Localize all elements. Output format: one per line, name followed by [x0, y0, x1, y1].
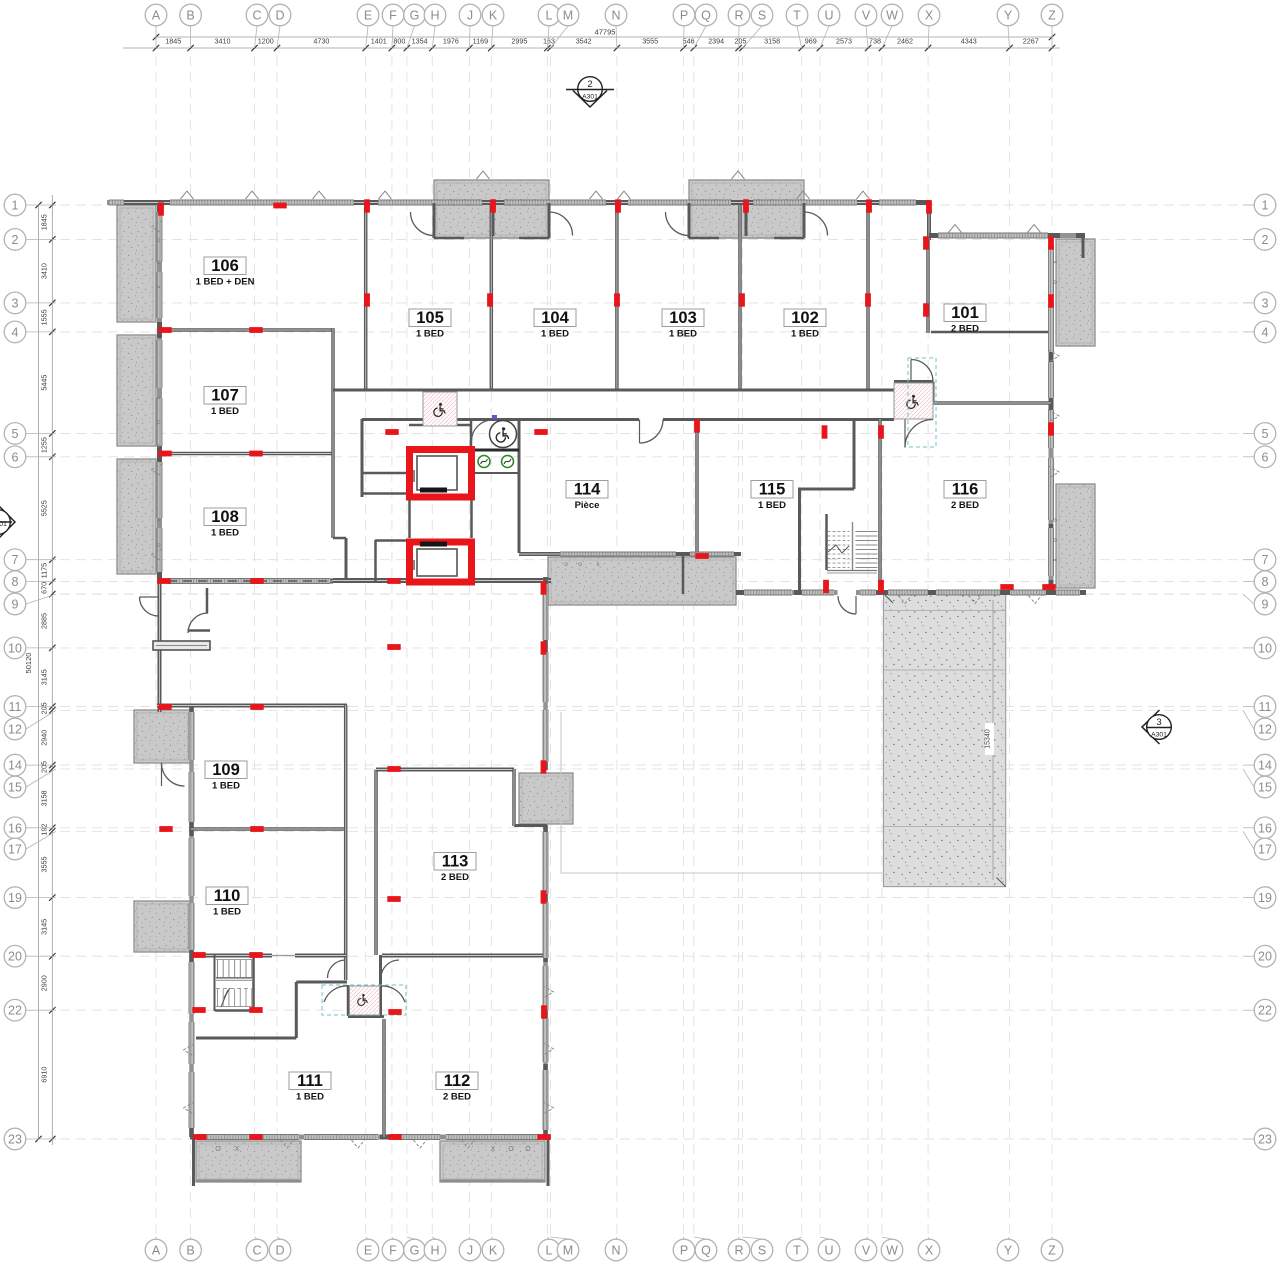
svg-text:102: 102	[791, 309, 819, 327]
svg-text:1976: 1976	[443, 37, 459, 46]
svg-text:1 BED: 1 BED	[791, 329, 819, 340]
svg-text:1 BED: 1 BED	[296, 1092, 324, 1103]
svg-text:1845: 1845	[165, 37, 181, 46]
svg-text:1175: 1175	[40, 563, 49, 578]
svg-text:4: 4	[12, 325, 19, 339]
svg-text:4: 4	[1262, 325, 1269, 339]
svg-text:2: 2	[587, 79, 592, 90]
svg-text:5525: 5525	[40, 500, 49, 516]
svg-text:115: 115	[759, 481, 786, 499]
svg-text:Y: Y	[1004, 9, 1013, 23]
svg-text:C: C	[252, 1244, 261, 1258]
svg-text:10: 10	[1258, 641, 1272, 655]
svg-text:8: 8	[12, 575, 19, 589]
svg-text:670: 670	[40, 582, 49, 594]
svg-text:11: 11	[1259, 700, 1272, 714]
svg-text:L: L	[546, 9, 553, 23]
svg-text:3410: 3410	[40, 263, 49, 279]
svg-text:H: H	[430, 1244, 439, 1258]
svg-text:3158: 3158	[40, 790, 49, 806]
svg-text:W: W	[886, 1244, 898, 1258]
svg-text:50120: 50120	[24, 653, 33, 674]
svg-text:F: F	[389, 1244, 397, 1258]
svg-text:3410: 3410	[215, 37, 231, 46]
svg-text:2267: 2267	[1023, 37, 1039, 46]
svg-text:23: 23	[8, 1133, 22, 1147]
svg-text:Y: Y	[1004, 1244, 1013, 1258]
svg-text:47795: 47795	[595, 28, 616, 37]
svg-text:101: 101	[951, 304, 979, 322]
svg-text:R: R	[734, 1244, 743, 1258]
svg-text:G: G	[410, 1244, 420, 1258]
svg-text:2: 2	[12, 233, 19, 247]
svg-text:110: 110	[214, 887, 241, 905]
svg-text:O: O	[525, 1146, 531, 1153]
svg-text:5: 5	[1262, 427, 1269, 441]
svg-text:1401: 1401	[371, 37, 387, 46]
svg-text:N: N	[611, 1244, 620, 1258]
svg-text:J: J	[467, 1244, 473, 1258]
svg-text:B: B	[186, 1244, 194, 1258]
svg-text:15340: 15340	[985, 729, 992, 749]
svg-text:15: 15	[1258, 781, 1272, 795]
svg-text:o: o	[156, 543, 163, 547]
svg-text:3: 3	[1262, 296, 1269, 310]
svg-text:1 BED: 1 BED	[211, 528, 239, 539]
svg-text:106: 106	[211, 257, 239, 275]
svg-text:O: O	[215, 1146, 221, 1153]
svg-text:20: 20	[1258, 950, 1272, 964]
svg-text:3555: 3555	[642, 37, 658, 46]
svg-text:5445: 5445	[40, 375, 49, 391]
svg-text:2 BED: 2 BED	[443, 1092, 471, 1103]
svg-text:X: X	[235, 1146, 240, 1153]
svg-text:o: o	[1052, 280, 1059, 284]
svg-text:D: D	[275, 9, 284, 23]
svg-text:2394: 2394	[708, 37, 724, 46]
svg-text:104: 104	[541, 309, 569, 327]
svg-text:1354: 1354	[412, 37, 428, 46]
svg-text:W: W	[886, 9, 898, 23]
svg-text:D: D	[275, 1244, 284, 1258]
svg-text:17: 17	[1258, 843, 1272, 857]
svg-text:Z: Z	[1048, 9, 1056, 23]
svg-text:114: 114	[574, 481, 601, 499]
svg-text:1 BED: 1 BED	[213, 907, 241, 918]
svg-text:M: M	[563, 1244, 573, 1258]
svg-text:X: X	[491, 1146, 496, 1153]
svg-text:P: P	[680, 1244, 688, 1258]
svg-text:1 BED: 1 BED	[541, 329, 569, 340]
svg-text:Z: Z	[1048, 1244, 1056, 1258]
svg-text:16: 16	[8, 821, 22, 835]
svg-text:109: 109	[212, 761, 240, 779]
svg-text:1 BED + DEN: 1 BED + DEN	[196, 277, 255, 288]
svg-text:23: 23	[1258, 1133, 1272, 1147]
svg-text:N: N	[611, 9, 620, 23]
svg-text:14: 14	[1258, 759, 1272, 773]
svg-text:22: 22	[1258, 1004, 1272, 1018]
svg-text:V: V	[862, 9, 871, 23]
svg-text:M: M	[563, 9, 573, 23]
svg-text:1845: 1845	[40, 214, 49, 230]
svg-text:1200: 1200	[258, 37, 274, 46]
svg-text:15: 15	[8, 781, 22, 795]
svg-text:3542: 3542	[576, 37, 592, 46]
svg-text:3: 3	[12, 296, 19, 310]
svg-text:1 BED: 1 BED	[758, 500, 786, 511]
svg-text:1555: 1555	[40, 309, 49, 325]
svg-text:o: o	[578, 561, 582, 568]
svg-text:2 BED: 2 BED	[951, 324, 979, 335]
svg-text:R: R	[734, 9, 743, 23]
svg-text:103: 103	[669, 309, 697, 327]
svg-text:2: 2	[1262, 233, 1269, 247]
svg-text:A301: A301	[1151, 732, 1167, 739]
svg-text:7: 7	[12, 553, 19, 567]
svg-text:1255: 1255	[40, 437, 49, 453]
svg-text:546: 546	[683, 37, 695, 46]
svg-text:3145: 3145	[40, 669, 49, 685]
svg-text:Q: Q	[701, 1244, 711, 1258]
svg-text:5: 5	[12, 427, 19, 441]
svg-text:A: A	[152, 9, 161, 23]
svg-text:J: J	[467, 9, 473, 23]
svg-text:1 BED: 1 BED	[211, 406, 239, 417]
svg-text:205: 205	[40, 761, 49, 773]
svg-text:1 BED: 1 BED	[416, 329, 444, 340]
svg-text:17: 17	[8, 843, 22, 857]
svg-text:1: 1	[12, 199, 19, 213]
svg-text:2 BED: 2 BED	[441, 872, 469, 883]
svg-text:108: 108	[211, 508, 239, 526]
svg-text:o: o	[1052, 518, 1059, 522]
svg-text:105: 105	[416, 309, 444, 327]
svg-text:Pièce: Pièce	[575, 500, 600, 511]
svg-text:U: U	[824, 9, 833, 23]
svg-text:X: X	[925, 9, 934, 23]
svg-text:A301: A301	[582, 94, 598, 101]
svg-text:12: 12	[1258, 723, 1272, 737]
svg-text:2462: 2462	[897, 37, 913, 46]
svg-text:738: 738	[869, 37, 881, 46]
svg-text:2 BED: 2 BED	[951, 500, 979, 511]
svg-text:800: 800	[393, 37, 405, 46]
svg-text:o: o	[564, 561, 568, 568]
svg-text:2885: 2885	[40, 613, 49, 629]
svg-text:116: 116	[952, 481, 979, 499]
svg-text:1169: 1169	[473, 37, 488, 46]
svg-text:K: K	[489, 9, 498, 23]
svg-text:112: 112	[444, 1072, 471, 1090]
svg-text:T: T	[793, 9, 801, 23]
svg-text:3: 3	[1156, 717, 1161, 728]
svg-text:205: 205	[735, 37, 747, 46]
svg-text:10: 10	[8, 641, 22, 655]
svg-text:1: 1	[1262, 199, 1269, 213]
svg-text:3555: 3555	[40, 856, 49, 872]
svg-text:T: T	[793, 1244, 801, 1258]
svg-text:01: 01	[0, 521, 7, 528]
svg-text:20: 20	[8, 950, 22, 964]
svg-text:7: 7	[1262, 553, 1269, 567]
svg-text:U: U	[824, 1244, 833, 1258]
svg-text:19: 19	[1258, 891, 1272, 905]
svg-text:o: o	[156, 260, 163, 264]
svg-text:O: O	[508, 1146, 514, 1153]
svg-text:19: 19	[8, 891, 22, 905]
svg-text:9: 9	[1262, 598, 1269, 612]
svg-text:2940: 2940	[40, 730, 49, 746]
svg-text:A: A	[152, 1244, 161, 1258]
svg-text:16: 16	[1258, 821, 1272, 835]
svg-text:2900: 2900	[40, 975, 49, 991]
svg-text:H: H	[430, 9, 439, 23]
svg-text:969: 969	[805, 37, 817, 46]
svg-text:205: 205	[40, 702, 49, 714]
svg-text:111: 111	[297, 1072, 323, 1090]
svg-text:S: S	[758, 1244, 766, 1258]
svg-text:11: 11	[9, 700, 22, 714]
svg-text:6: 6	[1262, 450, 1269, 464]
svg-text:V: V	[862, 1244, 871, 1258]
svg-text:E: E	[364, 1244, 372, 1258]
svg-text:2995: 2995	[511, 37, 527, 46]
svg-text:1 BED: 1 BED	[212, 781, 240, 792]
svg-text:G: G	[410, 9, 420, 23]
svg-text:P: P	[680, 9, 688, 23]
svg-text:C: C	[252, 9, 261, 23]
svg-text:3145: 3145	[40, 919, 49, 935]
svg-text:X: X	[925, 1244, 934, 1258]
svg-text:8: 8	[1262, 575, 1269, 589]
svg-text:E: E	[364, 9, 372, 23]
svg-text:K: K	[489, 1244, 498, 1258]
svg-text:9: 9	[12, 598, 19, 612]
svg-text:S: S	[758, 9, 766, 23]
svg-text:F: F	[389, 9, 397, 23]
svg-text:107: 107	[211, 387, 239, 405]
svg-text:6: 6	[12, 450, 19, 464]
svg-text:14: 14	[8, 759, 22, 773]
svg-text:o: o	[156, 238, 163, 242]
svg-text:6910: 6910	[40, 1067, 49, 1083]
svg-text:o: o	[156, 420, 163, 424]
svg-text:L: L	[546, 1244, 553, 1258]
svg-text:2573: 2573	[836, 37, 852, 46]
svg-text:113: 113	[442, 853, 469, 871]
svg-text:o: o	[1052, 538, 1059, 542]
svg-text:o: o	[156, 444, 163, 448]
svg-text:192: 192	[40, 824, 49, 836]
svg-text:12: 12	[8, 723, 22, 737]
svg-text:1 BED: 1 BED	[669, 329, 697, 340]
svg-text:B: B	[186, 9, 194, 23]
svg-text:Q: Q	[701, 9, 711, 23]
svg-text:4343: 4343	[961, 37, 977, 46]
svg-text:22: 22	[8, 1004, 22, 1018]
svg-text:4730: 4730	[313, 37, 329, 46]
svg-text:3158: 3158	[764, 37, 780, 46]
